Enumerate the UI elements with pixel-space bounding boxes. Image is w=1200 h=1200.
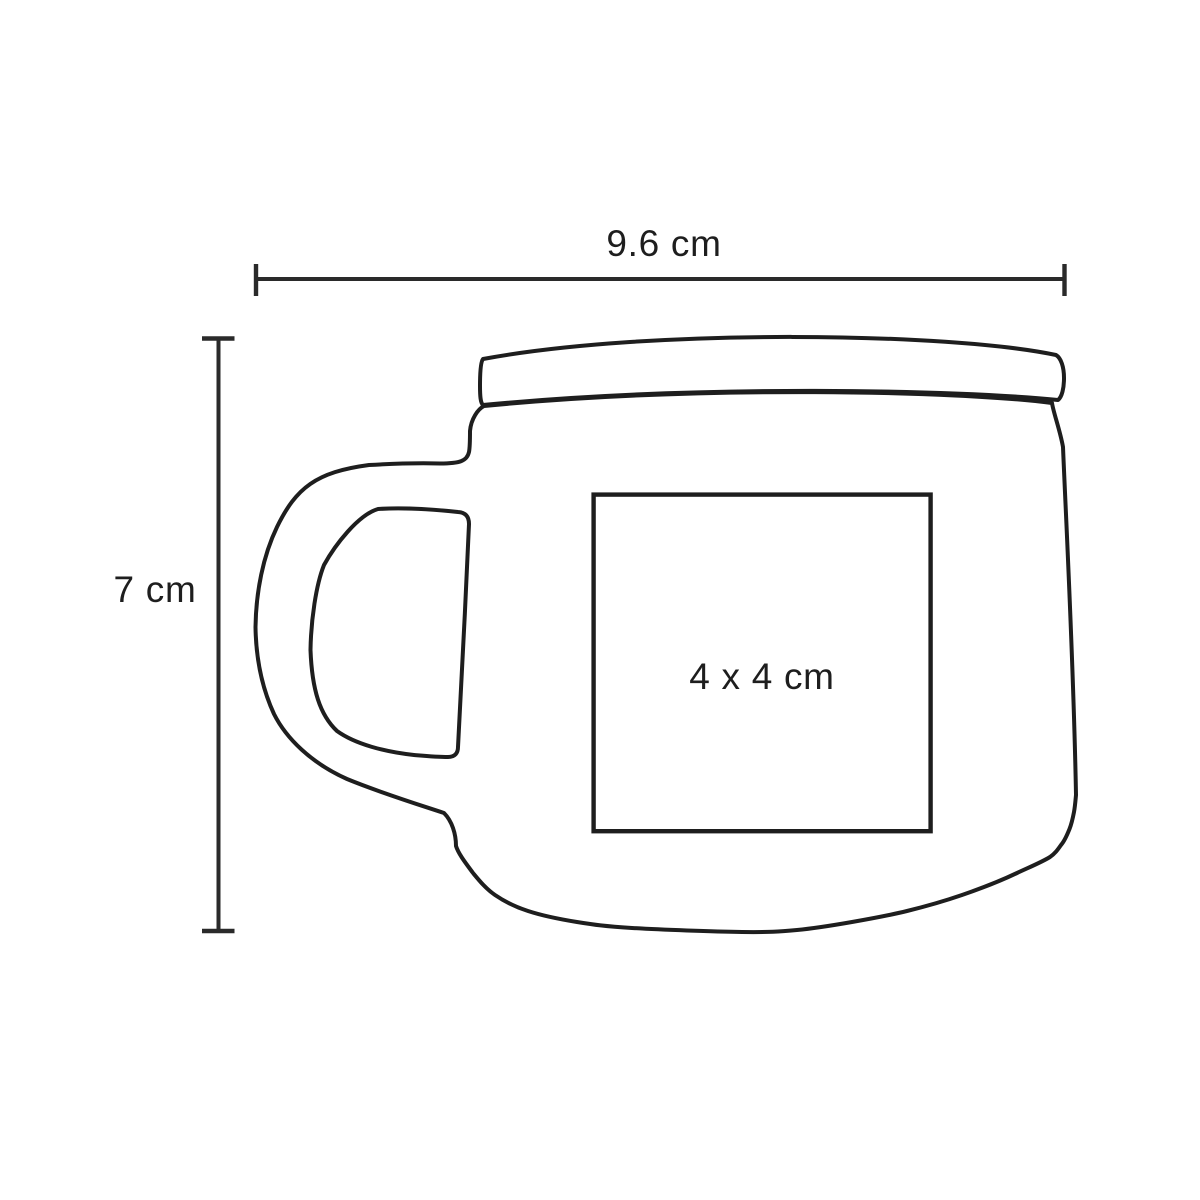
svg-text:7 cm: 7 cm [114,569,197,610]
svg-text:4 x 4 cm: 4 x 4 cm [689,656,834,697]
svg-text:9.6 cm: 9.6 cm [606,223,721,264]
